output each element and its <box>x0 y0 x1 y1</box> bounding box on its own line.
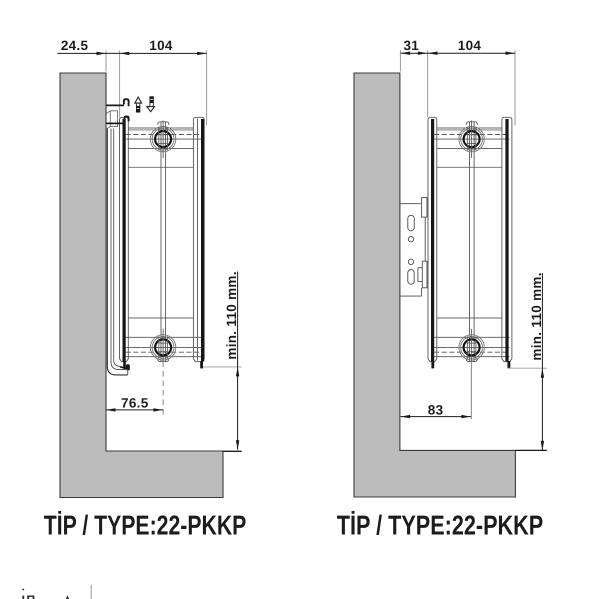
svg-text:31: 31 <box>403 38 419 53</box>
svg-text:TİP / TYPE:22-PKKP: TİP / TYPE:22-PKKP <box>44 510 247 541</box>
svg-text:min. 110 mm.: min. 110 mm. <box>529 272 544 360</box>
svg-text:83: 83 <box>428 403 444 418</box>
svg-text:104: 104 <box>149 38 173 53</box>
svg-text:min. 110 mm.: min. 110 mm. <box>224 271 239 359</box>
svg-text:76.5: 76.5 <box>121 396 149 411</box>
svg-text:104: 104 <box>458 38 482 53</box>
svg-text:24.5: 24.5 <box>61 38 89 53</box>
svg-text:TİP / TYPE:22-PKKP: TİP / TYPE:22-PKKP <box>337 510 543 541</box>
